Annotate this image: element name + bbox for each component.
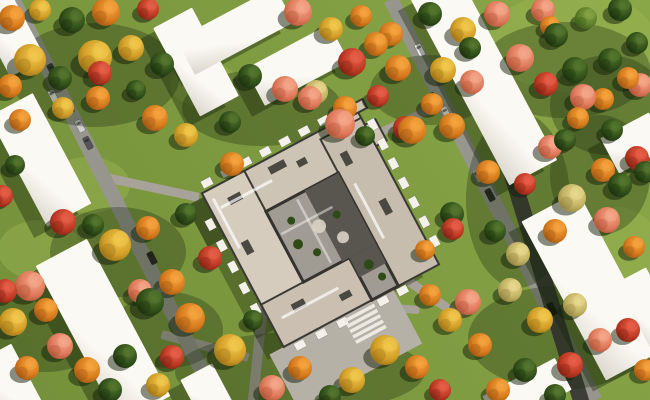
- tree-O: [385, 55, 411, 81]
- tree-R: [534, 72, 558, 96]
- tree-O: [617, 67, 639, 89]
- tree-O: [543, 219, 567, 243]
- tree-G: [601, 119, 623, 141]
- tree-G: [82, 214, 104, 236]
- tree-S: [455, 289, 481, 315]
- tree-P: [563, 293, 587, 317]
- tree-Y: [438, 308, 462, 332]
- tree-S: [594, 207, 620, 233]
- tree-O: [9, 109, 31, 131]
- tree-Y: [118, 35, 144, 61]
- tree-O: [0, 5, 25, 31]
- tree-P: [498, 278, 522, 302]
- tree-O: [476, 160, 500, 184]
- tree-G: [355, 126, 375, 146]
- tree-O: [439, 113, 465, 139]
- tree-O: [220, 152, 244, 176]
- tree-R: [198, 246, 222, 270]
- tree-G: [608, 173, 632, 197]
- tree-S: [325, 109, 355, 139]
- tree-R: [88, 61, 112, 85]
- tree-S: [259, 375, 285, 400]
- tree-R: [367, 85, 389, 107]
- tree-O: [142, 105, 168, 131]
- tree-O: [421, 93, 443, 115]
- tree-O: [159, 269, 185, 295]
- tree-O: [86, 86, 110, 110]
- tree-R: [50, 209, 76, 235]
- tree-O: [415, 240, 435, 260]
- tree-G: [5, 155, 25, 175]
- tree-G: [513, 358, 537, 382]
- tree-M: [575, 7, 597, 29]
- tree-R: [338, 48, 366, 76]
- tree-R: [160, 345, 184, 369]
- tree-O: [398, 116, 426, 144]
- tree-Y: [214, 334, 246, 366]
- tree-O: [419, 284, 441, 306]
- tree-Y: [370, 335, 400, 365]
- tree-Y: [29, 0, 51, 21]
- tree-O: [364, 32, 388, 56]
- tree-O: [350, 5, 372, 27]
- tree-Y: [0, 308, 27, 336]
- tree-O: [623, 236, 645, 258]
- tree-G: [126, 80, 146, 100]
- tree-Y: [527, 307, 553, 333]
- tree-G: [243, 310, 263, 330]
- tree-S: [506, 44, 534, 72]
- tree-Y: [174, 123, 198, 147]
- tree-G: [598, 48, 622, 72]
- tree-Y: [99, 229, 131, 261]
- tree-G: [484, 220, 506, 242]
- tree-G: [418, 2, 442, 26]
- tree-P: [506, 242, 530, 266]
- tree-G: [113, 344, 137, 368]
- tree-R: [442, 218, 464, 240]
- tree-S: [272, 76, 298, 102]
- tree-S: [298, 86, 322, 110]
- aerial-site-render: [0, 0, 650, 400]
- tree-O: [136, 216, 160, 240]
- tree-R: [616, 318, 640, 342]
- tree-G: [219, 111, 241, 133]
- tree-R: [429, 379, 451, 400]
- tree-P: [558, 184, 586, 212]
- tree-S: [484, 1, 510, 27]
- tree-S: [47, 333, 73, 359]
- tree-G: [48, 66, 72, 90]
- tree-S: [588, 328, 612, 352]
- render-canvas: [0, 0, 650, 400]
- tree-O: [405, 355, 429, 379]
- tree-Y: [52, 97, 74, 119]
- tree-G: [150, 52, 174, 76]
- tree-G: [238, 64, 262, 88]
- tree-G: [459, 37, 481, 59]
- tree-Y: [146, 373, 170, 397]
- tree-G: [626, 32, 648, 54]
- tree-S: [15, 271, 45, 301]
- tree-G: [59, 7, 85, 33]
- tree-R: [514, 173, 536, 195]
- tree-O: [288, 356, 312, 380]
- tree-G: [562, 57, 588, 83]
- tree-G: [544, 23, 568, 47]
- tree-Y: [339, 367, 365, 393]
- tree-Y: [319, 17, 343, 41]
- tree-S: [570, 84, 596, 110]
- tree-Y: [14, 44, 46, 76]
- tree-S: [460, 70, 484, 94]
- tree-O: [74, 357, 100, 383]
- tree-Y: [430, 57, 456, 83]
- tree-G: [554, 129, 576, 151]
- tree-R: [557, 352, 583, 378]
- tree-G: [175, 203, 197, 225]
- tree-O: [567, 107, 589, 129]
- tree-O: [468, 333, 492, 357]
- tree-O: [175, 303, 205, 333]
- tree-G: [136, 288, 164, 316]
- tree-O: [34, 298, 58, 322]
- tree-O: [15, 356, 39, 380]
